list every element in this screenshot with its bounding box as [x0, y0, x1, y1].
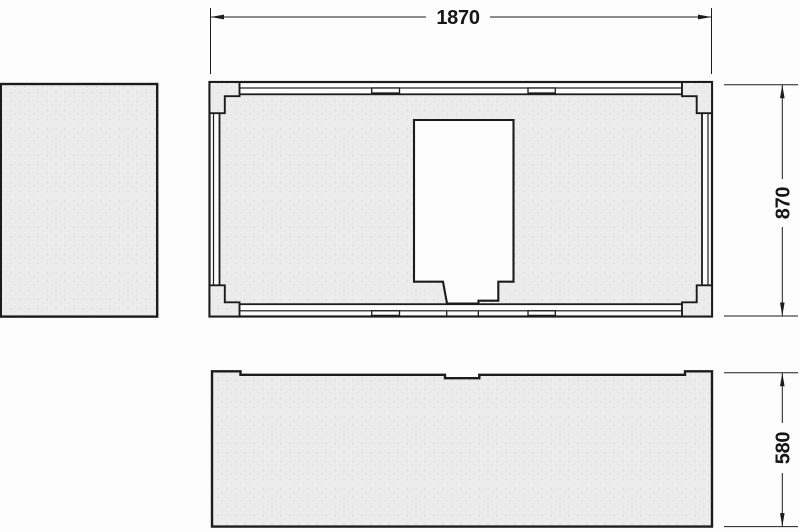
tab-top-right [528, 88, 555, 93]
side-view-panel [1, 84, 157, 317]
arrowhead-down-icon [780, 513, 785, 527]
arrowhead-left-icon [211, 15, 225, 20]
arrowhead-right-icon [698, 15, 712, 20]
plan-view [210, 82, 713, 317]
arrowhead-up-icon [780, 373, 785, 387]
plan-cutout [414, 120, 514, 304]
dimension-width: 1870 [211, 7, 712, 74]
front-view [212, 371, 712, 526]
dimension-width-value: 1870 [436, 7, 479, 29]
tab-bottom-right [528, 311, 555, 316]
dimension-height-value: 580 [773, 432, 795, 465]
dimension-height: 580 [724, 373, 798, 527]
technical-drawing-page: 1870 870 580 [0, 0, 800, 532]
dimension-depth: 870 [724, 85, 798, 316]
front-view-panel [212, 371, 712, 526]
arrowhead-down-icon [780, 303, 785, 317]
tab-bottom-left [372, 311, 400, 316]
bathtub-support-technical-drawing: 1870 870 580 [0, 0, 800, 532]
tab-top-left [372, 88, 400, 93]
side-view [1, 84, 157, 317]
arrowhead-up-icon [780, 85, 785, 99]
dimension-depth-value: 870 [773, 187, 795, 220]
